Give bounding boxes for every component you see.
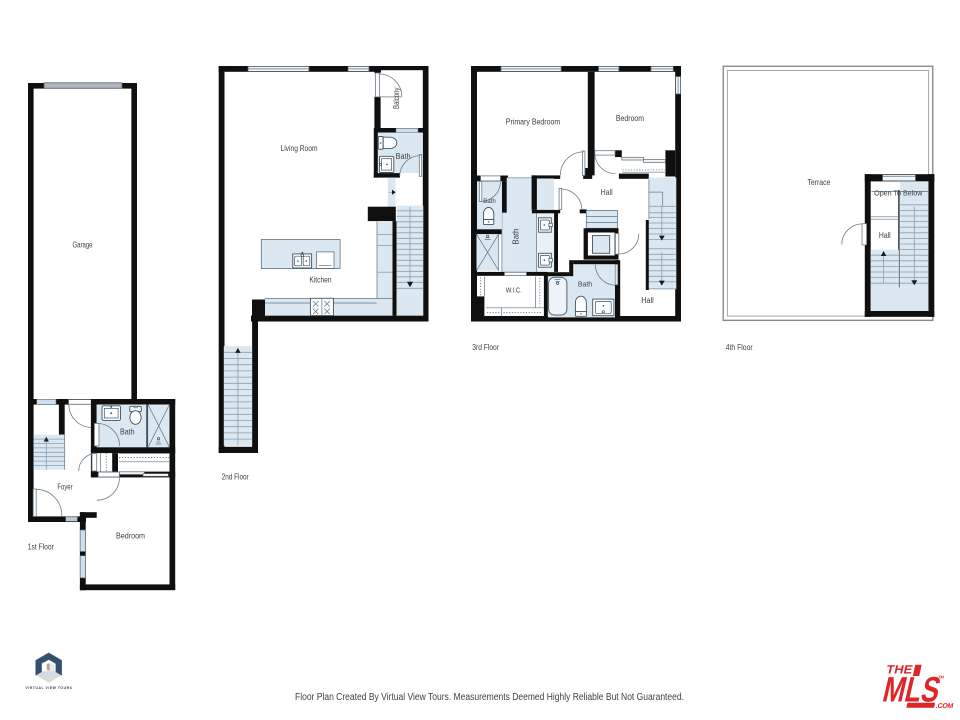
- svg-text:1st Floor: 1st Floor: [28, 542, 54, 551]
- svg-text:Garage: Garage: [73, 240, 93, 249]
- svg-text:Primary Bedroom: Primary Bedroom: [506, 118, 561, 127]
- svg-text:2nd Floor: 2nd Floor: [222, 473, 249, 482]
- svg-text:Living Room: Living Room: [281, 144, 318, 153]
- svg-text:.COM: .COM: [935, 702, 954, 710]
- svg-text:Bath: Bath: [120, 428, 135, 437]
- svg-text:Floor Plan Created By Virtual: Floor Plan Created By Virtual View Tours…: [295, 692, 684, 703]
- svg-text:Terrace: Terrace: [807, 178, 830, 187]
- svg-text:4th Floor: 4th Floor: [726, 343, 753, 352]
- svg-text:W.I.C.: W.I.C.: [506, 286, 522, 295]
- svg-text:VIRTUAL VIEW TOURS: VIRTUAL VIEW TOURS: [26, 686, 73, 690]
- svg-text:Kitchen: Kitchen: [309, 276, 331, 285]
- svg-text:Bedroom: Bedroom: [616, 114, 644, 123]
- svg-text:Hall: Hall: [879, 231, 891, 240]
- svg-text:Bath: Bath: [512, 229, 521, 245]
- svg-text:Bedroom: Bedroom: [116, 532, 145, 541]
- svg-text:Hall: Hall: [641, 296, 654, 305]
- svg-text:Foyer: Foyer: [57, 483, 72, 492]
- svg-text:Bath: Bath: [578, 279, 592, 288]
- svg-text:Bath: Bath: [483, 198, 496, 205]
- svg-text:3rd Floor: 3rd Floor: [472, 343, 499, 352]
- svg-text:Hall: Hall: [601, 188, 613, 197]
- svg-text:Balcony: Balcony: [392, 87, 401, 109]
